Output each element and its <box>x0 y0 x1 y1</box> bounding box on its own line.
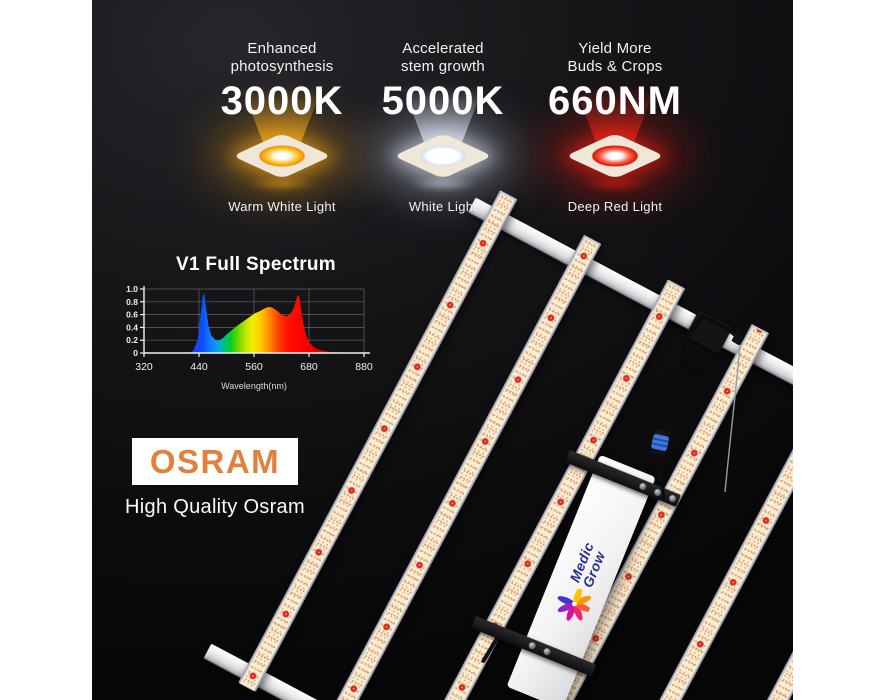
osram-logo-text: OSRAM <box>150 443 280 481</box>
svg-text:Wavelength(nm): Wavelength(nm) <box>221 381 287 391</box>
brand-name: Medic Grow <box>567 540 609 589</box>
svg-text:440: 440 <box>190 361 208 373</box>
svg-text:880: 880 <box>355 361 373 373</box>
feature-value: 660NM <box>535 81 695 121</box>
chip-glow <box>395 175 491 193</box>
osram-caption: High Quality Osram <box>120 496 310 519</box>
feature-desc-line2: Buds & Crops <box>535 58 695 76</box>
led-bar <box>657 413 793 700</box>
svg-text:560: 560 <box>245 361 263 373</box>
svg-text:0.2: 0.2 <box>126 335 138 345</box>
chip-glow <box>567 175 663 193</box>
feature-label: White Light <box>363 199 523 214</box>
svg-text:0.6: 0.6 <box>126 310 138 320</box>
screw-icon <box>638 482 647 491</box>
feature-label: Warm White Light <box>202 199 362 214</box>
led-chip-warm-white-icon <box>202 123 362 185</box>
feature-deep-red: Yield More Buds & Crops 660NM Deep Red L… <box>535 40 695 214</box>
medicgrow-flower-icon <box>548 582 595 629</box>
chip-body <box>233 133 332 179</box>
feature-white: Accelerated stem growth 5000K White Ligh… <box>363 40 523 214</box>
feature-desc-line1: Yield More <box>535 40 695 58</box>
svg-text:1.0: 1.0 <box>126 284 138 294</box>
feature-description: Accelerated stem growth <box>363 40 523 78</box>
chip-body <box>566 133 665 179</box>
feature-desc-line2: photosynthesis <box>202 58 362 76</box>
feature-desc-line1: Accelerated <box>363 40 523 58</box>
chip-glow <box>234 175 330 193</box>
feature-desc-line2: stem growth <box>363 58 523 76</box>
chip-body <box>394 133 493 179</box>
feature-value: 5000K <box>363 81 523 121</box>
screw-icon <box>668 494 677 503</box>
feature-desc-line1: Enhanced <box>202 40 362 58</box>
osram-logo: OSRAM <box>132 438 298 485</box>
feature-label: Deep Red Light <box>535 199 695 214</box>
svg-text:680: 680 <box>300 361 318 373</box>
ad-canvas: Enhanced photosynthesis 3000K Warm White… <box>0 0 885 700</box>
chart-title: V1 Full Spectrum <box>114 254 382 276</box>
feature-description: Yield More Buds & Crops <box>535 40 695 78</box>
led-chip-white-icon <box>363 123 523 185</box>
product-infographic: Enhanced photosynthesis 3000K Warm White… <box>92 0 793 700</box>
feature-description: Enhanced photosynthesis <box>202 40 362 78</box>
feature-warm-white: Enhanced photosynthesis 3000K Warm White… <box>202 40 362 214</box>
svg-text:320: 320 <box>135 361 153 373</box>
spectrum-chart: V1 Full Spectrum 00.20.40.60.81.03204405… <box>114 254 386 412</box>
led-chip-deep-red-icon <box>535 123 695 185</box>
screw-icon <box>653 488 662 497</box>
svg-text:0: 0 <box>133 348 138 358</box>
svg-text:0.4: 0.4 <box>126 322 138 332</box>
svg-text:0.8: 0.8 <box>126 297 138 307</box>
spectrum-plot: 00.20.40.60.81.0320440560680880Wavelengt… <box>114 279 382 407</box>
feature-value: 3000K <box>202 81 362 121</box>
